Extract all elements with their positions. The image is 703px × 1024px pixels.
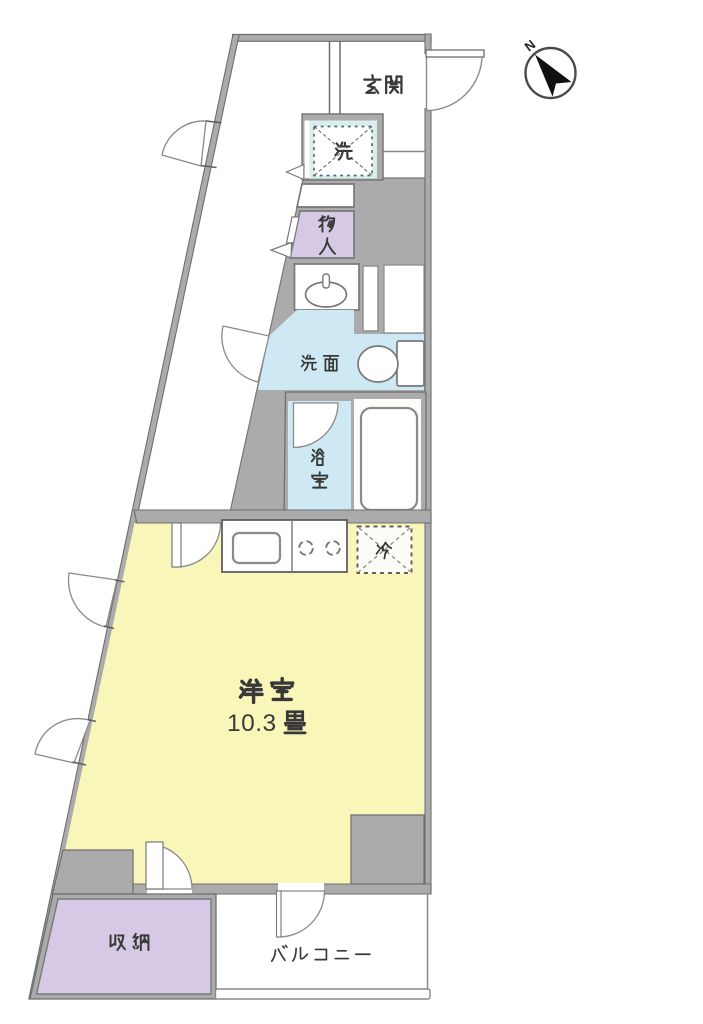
svg-text:10.3: 10.3 [227, 710, 277, 737]
